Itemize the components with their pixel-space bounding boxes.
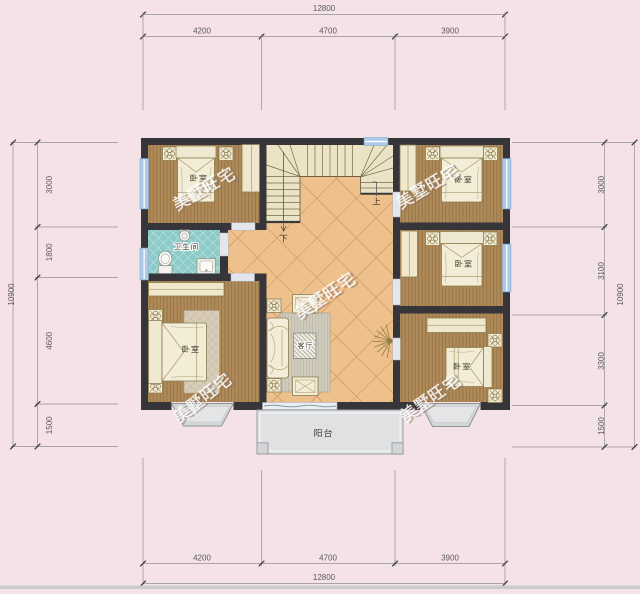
svg-text:3000: 3000 xyxy=(45,175,54,193)
svg-text:1800: 1800 xyxy=(45,243,54,261)
svg-text:3100: 3100 xyxy=(597,262,606,280)
svg-text:4200: 4200 xyxy=(193,554,211,563)
svg-text:4600: 4600 xyxy=(45,331,54,349)
svg-text:1500: 1500 xyxy=(45,416,54,434)
svg-text:12800: 12800 xyxy=(313,573,336,582)
svg-text:3300: 3300 xyxy=(597,352,606,370)
svg-text:4700: 4700 xyxy=(319,554,337,563)
svg-text:4700: 4700 xyxy=(319,27,337,36)
svg-text:12800: 12800 xyxy=(313,4,336,13)
svg-text:3000: 3000 xyxy=(597,175,606,193)
svg-text:4200: 4200 xyxy=(193,27,211,36)
svg-text:3900: 3900 xyxy=(441,27,459,36)
svg-text:10900: 10900 xyxy=(7,283,16,306)
svg-text:1500: 1500 xyxy=(597,417,606,435)
svg-text:10900: 10900 xyxy=(616,283,625,306)
svg-text:3900: 3900 xyxy=(441,554,459,563)
